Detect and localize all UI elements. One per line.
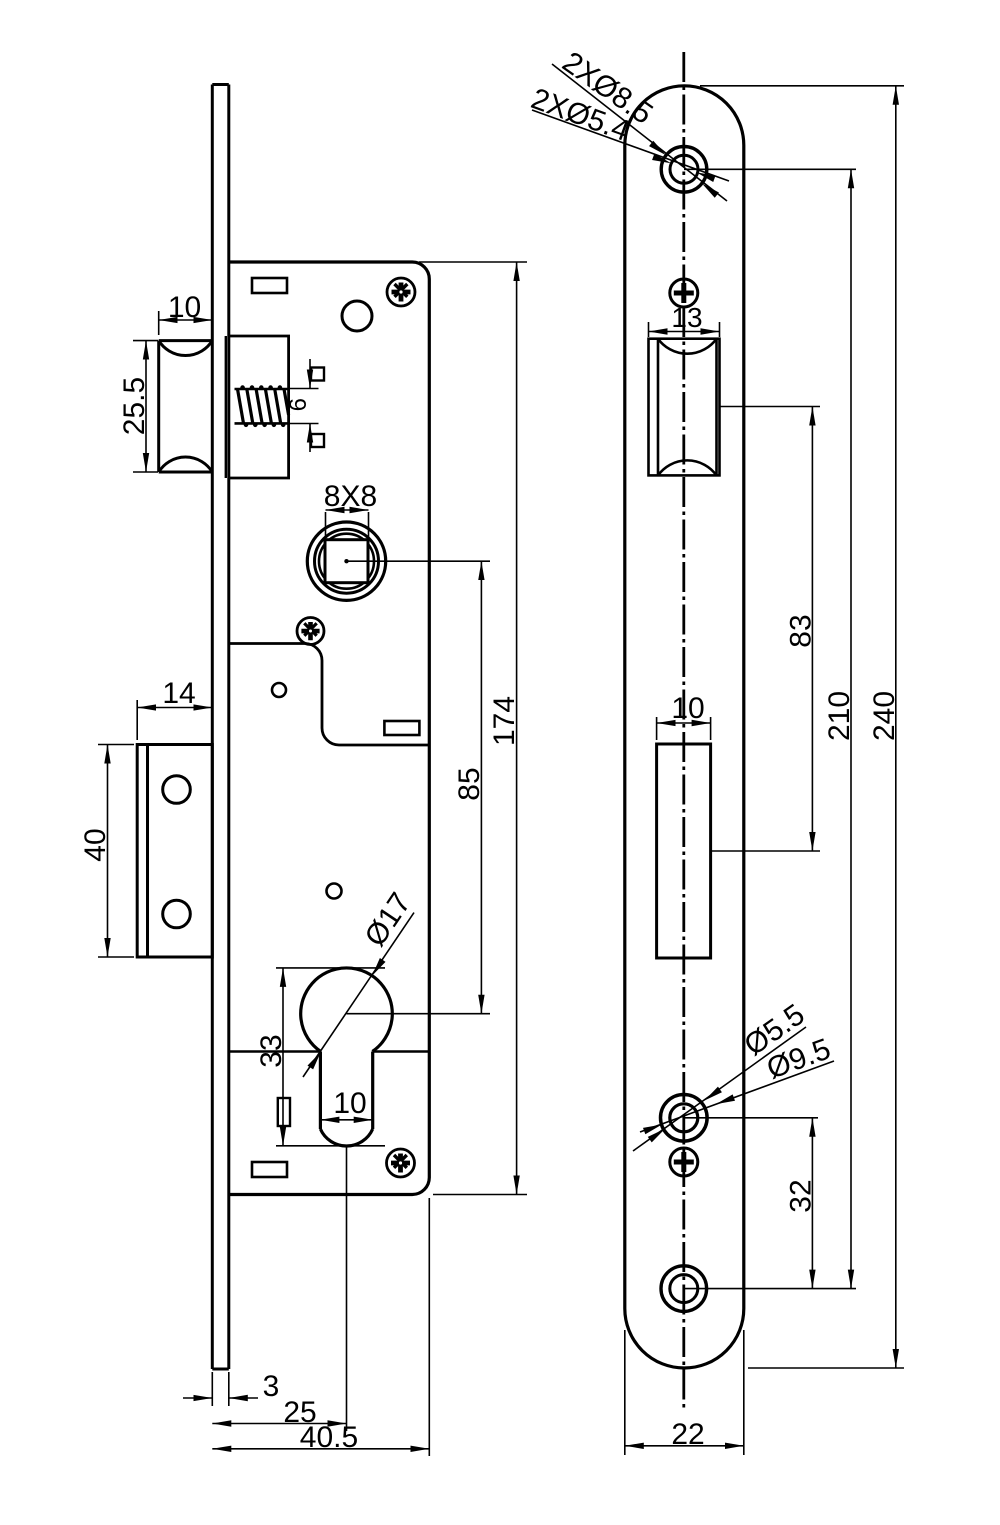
svg-text:14: 14	[162, 677, 195, 710]
svg-text:25.5: 25.5	[118, 377, 151, 435]
svg-text:240: 240	[868, 691, 901, 741]
svg-text:8X8: 8X8	[324, 480, 377, 513]
svg-text:33: 33	[255, 1034, 288, 1067]
svg-text:40.5: 40.5	[300, 1421, 358, 1454]
svg-text:210: 210	[823, 691, 856, 741]
svg-text:32: 32	[785, 1179, 818, 1212]
svg-text:40: 40	[79, 828, 112, 861]
svg-text:3: 3	[263, 1370, 280, 1403]
svg-text:10: 10	[168, 291, 201, 324]
svg-text:10: 10	[671, 692, 704, 725]
svg-text:85: 85	[453, 767, 486, 800]
svg-text:22: 22	[671, 1418, 704, 1451]
svg-text:83: 83	[785, 614, 818, 647]
svg-text:10: 10	[333, 1087, 366, 1120]
svg-text:174: 174	[488, 696, 521, 746]
svg-text:6: 6	[285, 398, 312, 411]
svg-text:13: 13	[671, 302, 702, 333]
